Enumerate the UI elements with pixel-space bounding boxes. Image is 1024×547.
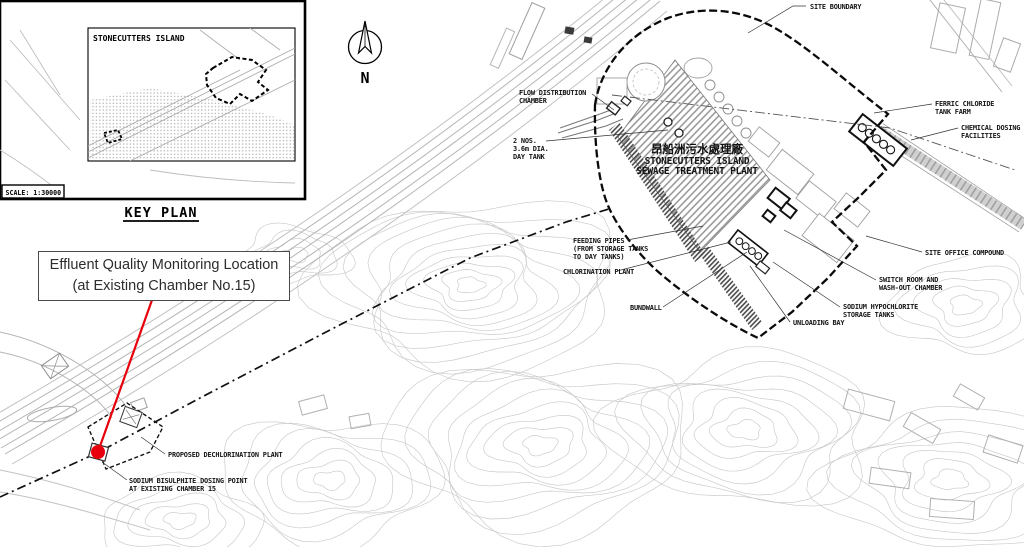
label-text-day-tank: 2 NOS.3.6m DIA.DAY TANK bbox=[513, 137, 549, 161]
label-text-chlorination-plant: CHLORINATION PLANT bbox=[563, 268, 634, 276]
leader-line-sodium-bisulphite-dosing-point bbox=[102, 462, 127, 480]
scale-label: SCALE: 1:30000 bbox=[6, 189, 62, 197]
label-text-proposed-dechlorination-plant: PROPOSED DECHLORINATION PLANT bbox=[168, 451, 283, 459]
map-label-ferric-chloride-tank-farm: FERRIC CHLORIDETANK FARM bbox=[874, 100, 994, 116]
label-text-switch-room: SWITCH ROOM ANDWASH-OUT CHAMBER bbox=[879, 276, 943, 292]
monitoring-point bbox=[91, 445, 105, 459]
callout-line1: Effluent Quality Monitoring Location bbox=[50, 255, 279, 276]
leader-line-proposed-dechlorination-plant bbox=[141, 437, 165, 454]
leader-line-chemical-dosing-facilities bbox=[911, 128, 958, 140]
label-text-sodium-hypochlorite: SODIUM HYPOCHLORITESTORAGE TANKS bbox=[843, 303, 918, 319]
site-plan-stage: SITE BOUNDARYFLOW DISTRIBUTIONCHAMBER2 N… bbox=[0, 0, 1024, 547]
effluent-callout-box: Effluent Quality Monitoring Location (at… bbox=[38, 251, 290, 301]
day-tank-2 bbox=[675, 129, 683, 137]
key-plan-heading: KEY PLAN bbox=[124, 205, 197, 221]
treatment-plant-structures bbox=[558, 15, 907, 345]
plant-title-chinese: 昂船洲污水處理廠 bbox=[651, 142, 743, 156]
label-text-site-office-compound: SITE OFFICE COMPOUND bbox=[925, 249, 1004, 257]
monitoring-leader-line bbox=[99, 300, 152, 449]
label-text-bundwall: BUNDWALL bbox=[630, 304, 662, 312]
label-text-site-boundary: SITE BOUNDARY bbox=[810, 3, 862, 11]
north-label: N bbox=[360, 69, 369, 87]
north-arrow-icon: N bbox=[349, 21, 382, 87]
map-label-chemical-dosing-facilities: CHEMICAL DOSINGFACILITIES bbox=[911, 124, 1020, 140]
map-label-site-boundary: SITE BOUNDARY bbox=[748, 3, 862, 33]
label-text-sodium-bisulphite-dosing-point: SODIUM BISULPHITE DOSING POINTAT EXISTIN… bbox=[129, 477, 248, 493]
plant-title-line2: SEWAGE TREATMENT PLANT bbox=[636, 166, 758, 177]
key-plan-island-label: STONECUTTERS ISLAND bbox=[93, 34, 185, 43]
label-text-unloading-bay: UNLOADING BAY bbox=[793, 319, 845, 327]
label-text-chemical-dosing-facilities: CHEMICAL DOSINGFACILITIES bbox=[961, 124, 1020, 140]
map-label-proposed-dechlorination-plant: PROPOSED DECHLORINATION PLANT bbox=[141, 437, 283, 459]
key-plan-inset: STONECUTTERS ISLAND SCALE: 1:30000 KEY P… bbox=[0, 1, 305, 221]
day-tank-1 bbox=[664, 118, 672, 126]
map-label-site-office-compound: SITE OFFICE COMPOUND bbox=[866, 236, 1004, 257]
callout-line2: (at Existing Chamber No.15) bbox=[73, 276, 256, 297]
label-text-ferric-chloride-tank-farm: FERRIC CHLORIDETANK FARM bbox=[935, 100, 994, 116]
plant-title: 昂船洲污水處理廠 STONECUTTERS ISLAND SEWAGE TREA… bbox=[636, 142, 758, 177]
leader-line-site-office-compound bbox=[866, 236, 922, 252]
